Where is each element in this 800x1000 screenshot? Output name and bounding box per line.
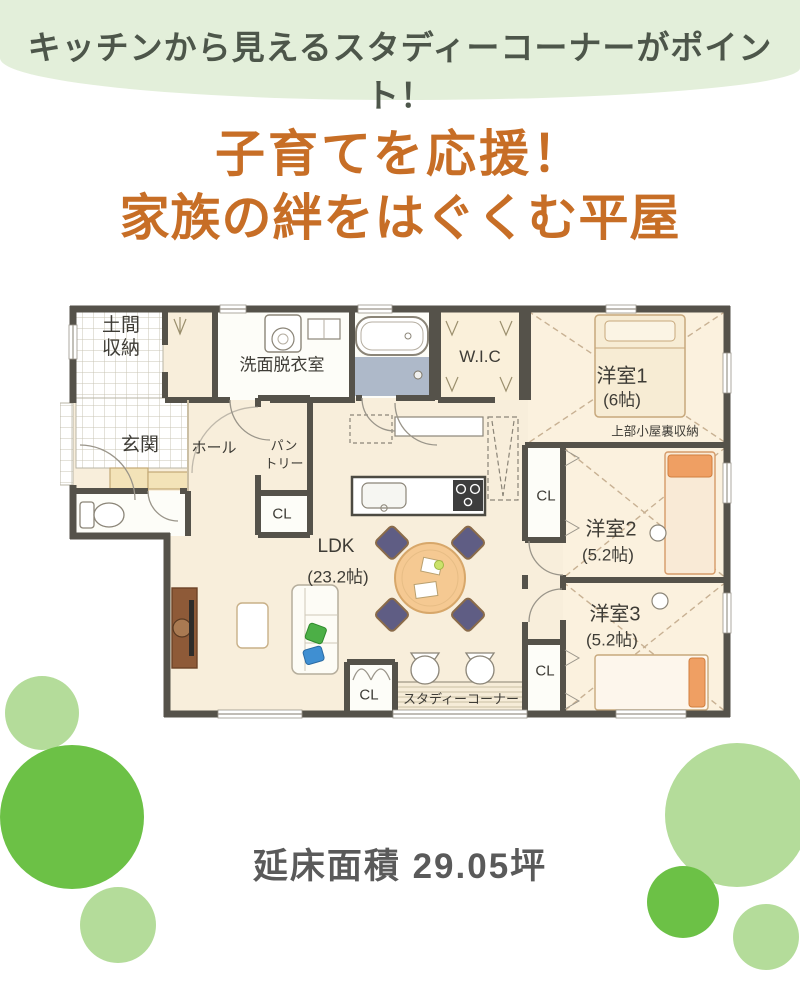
entrance-porch xyxy=(60,403,73,485)
label-bedroom2-size: (5.2帖) xyxy=(582,541,634,566)
label-hall: ホール xyxy=(191,437,236,458)
chair-bedroom3 xyxy=(652,593,668,609)
sink xyxy=(362,483,406,508)
sofa xyxy=(292,585,338,674)
label-washroom: 洗面脱衣室 xyxy=(240,351,325,376)
label-study-corner: スタディーコーナー xyxy=(403,689,519,708)
main-title: 子育てを応援！ 家族の絆をはぐくむ平屋 xyxy=(0,122,800,250)
deco-circle-left-small-bottom xyxy=(80,887,156,963)
label-closet-ldk: CL xyxy=(359,687,378,704)
deco-circle-left-large xyxy=(0,745,144,889)
deco-circle-right-solid xyxy=(647,866,719,938)
label-bedroom1-size: (6帖) xyxy=(603,386,641,411)
tv-board xyxy=(172,588,197,668)
toilet xyxy=(80,502,124,528)
stove xyxy=(453,480,483,511)
label-doma-storage: 土間収納 xyxy=(102,314,140,360)
title-line2: 家族の絆をはぐくむ平屋 xyxy=(0,186,800,250)
title-line1: 子育てを応援！ xyxy=(0,122,800,186)
label-bedroom3-size: (5.2帖) xyxy=(586,626,638,651)
label-pantry: パントリー xyxy=(264,437,303,473)
label-ldk: LDK xyxy=(318,536,355,558)
label-ldk-size: (23.2帖) xyxy=(307,563,368,588)
label-closet-pantry: CL xyxy=(272,506,291,523)
label-bedroom3: 洋室3 xyxy=(589,598,640,627)
floor-plan: 土間収納 玄関 ホール 洗面脱衣室 パントリー CL W.I.C 洋室1 (6帖… xyxy=(60,295,740,745)
coffee-table xyxy=(237,603,268,648)
chair-bedroom2 xyxy=(650,525,666,541)
deco-circle-left-small-top xyxy=(5,676,79,750)
label-genkan: 玄関 xyxy=(121,430,159,457)
washing-machine xyxy=(265,315,301,352)
banner-text: キッチンから見えるスタディーコーナーがポイント！ xyxy=(0,21,800,117)
label-closet-bedroom3: CL xyxy=(535,663,554,680)
tv xyxy=(189,600,194,656)
deco-circle-right-small xyxy=(733,904,799,970)
label-bedroom1: 洋室1 xyxy=(596,360,647,389)
label-closet-kitchen: CL xyxy=(536,488,555,505)
shoe-cabinet xyxy=(110,468,188,491)
label-attic-note: 上部小屋裏収納 xyxy=(611,421,699,440)
label-wic: W.I.C xyxy=(459,347,501,367)
label-bedroom2: 洋室2 xyxy=(585,513,636,542)
shower-icon xyxy=(414,371,422,379)
top-banner: キッチンから見えるスタディーコーナーがポイント！ xyxy=(0,0,800,100)
